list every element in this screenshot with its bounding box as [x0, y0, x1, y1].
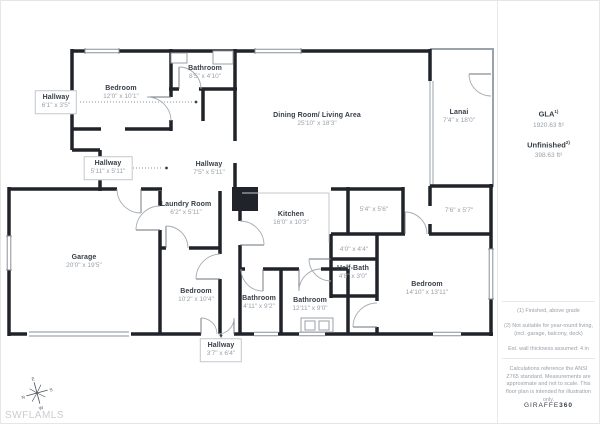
- room-label-bathroom-main: Bathroom 12'11" x 9'0": [292, 296, 327, 314]
- sidebar-divider: [502, 301, 595, 302]
- room-dims: 4'11" x 9'2": [242, 303, 276, 311]
- room-label-kitchen: Kitchen 16'0" x 10'3": [273, 210, 309, 228]
- room-name: Hallway: [42, 93, 70, 102]
- room-label-laundry: Laundry Room 6'2" x 5'11": [161, 200, 212, 218]
- room-label-bathroom-mid: Bathroom 4'11" x 9'2": [242, 294, 276, 312]
- room-name: Hallway: [91, 159, 126, 168]
- footnote-1: (1) Finished, above grade: [503, 308, 594, 316]
- room-name: Bedroom: [103, 84, 139, 93]
- unfinished-value: 398.63 ft²: [498, 152, 599, 159]
- room-label-bathroom-top: Bathroom 8'5" x 4'10": [188, 64, 222, 82]
- room-name: Hallway: [207, 341, 235, 350]
- room-dims: 3'7" x 6'4": [207, 350, 235, 358]
- room-dims: 4'0" x 4'4": [340, 246, 368, 254]
- room-label-lanai: Lanai 7'4" x 18'0": [443, 108, 475, 126]
- room-dims: 8'5" x 4'10": [188, 73, 222, 81]
- room-label-hallway-2: Hallway 5'11" x 5'11": [84, 156, 133, 180]
- room-name: Kitchen: [273, 210, 309, 219]
- room-dims: 25'10" x 18'3": [273, 120, 361, 128]
- disclaimer-text: Calculations reference the ANSI Z765 sta…: [505, 366, 592, 404]
- room-dims: 10'2" x 10'4": [178, 296, 214, 304]
- footnote-3: (incl. garage, balcony, deck): [503, 331, 594, 339]
- room-name: Bathroom: [242, 294, 276, 303]
- room-dims: 7'6" x 5'7": [445, 207, 473, 215]
- room-dims: 14'10" x 13'11": [406, 289, 448, 297]
- info-sidebar: GLA1) 1920.63 ft² Unfinished2) 398.63 ft…: [497, 1, 599, 424]
- compass-e: E: [31, 376, 35, 382]
- room-label-bedroom-right: Bedroom 14'10" x 13'11": [406, 280, 448, 298]
- room-name: Bathroom: [188, 64, 222, 73]
- gla-footnote-mark: 1): [554, 109, 558, 114]
- room-label-garage: Garage 20'0" x 19'5": [66, 253, 102, 271]
- brand-suffix: 360: [559, 402, 573, 409]
- compass-icon: E S W N: [17, 373, 57, 413]
- room-name: Bedroom: [406, 280, 448, 289]
- room-label-dining-living: Dining Room/ Living Area 25'10" x 18'3": [273, 111, 361, 129]
- room-name: Lanai: [443, 108, 475, 117]
- leader-lines: [80, 102, 221, 341]
- room-dims: 5'11" x 5'11": [91, 168, 126, 176]
- room-dims: 12'0" x 10'1": [103, 93, 139, 101]
- room-dims: 12'11" x 9'0": [292, 305, 327, 313]
- room-label-hallway-3: Hallway 7'5" x 5'11": [193, 160, 225, 178]
- room-label-bedroom-mid: Bedroom 10'2" x 10'4": [178, 287, 214, 305]
- room-label-closet-b: 7'6" x 5'7": [445, 207, 473, 215]
- unfinished-label: Unfinished2): [498, 140, 599, 150]
- room-name: Dining Room/ Living Area: [273, 111, 361, 120]
- compass-s: S: [49, 387, 53, 393]
- room-name: Garage: [66, 253, 102, 262]
- room-dims: 7'5" x 5'11": [193, 169, 225, 177]
- room-name: Laundry Room: [161, 200, 212, 209]
- room-label-closet-a: 5'4" x 5'6": [360, 206, 388, 214]
- room-label-hallway-4: Hallway 3'7" x 6'4": [200, 338, 242, 362]
- room-label-closet-c: 4'0" x 4'4": [340, 246, 368, 254]
- footnotes: (1) Finished, above grade (2) Not suitab…: [503, 308, 594, 354]
- brand-name: GIRAFFE: [524, 402, 559, 409]
- room-dims: 16'0" x 10'3": [273, 219, 309, 227]
- room-dims: 6'2" x 5'11": [161, 209, 212, 217]
- room-name: Bathroom: [292, 296, 327, 305]
- footnote-2: (2) Not suitable for year-round living,: [503, 323, 594, 331]
- room-name: Half-Bath: [337, 264, 369, 273]
- room-dims: 7'4" x 18'0": [443, 117, 475, 125]
- room-name: Hallway: [193, 160, 225, 169]
- sidebar-divider: [502, 358, 595, 359]
- floorplan-page: Bedroom 12'0" x 10'1" Bathroom 8'5" x 4'…: [0, 0, 600, 424]
- footnote-4: Est. wall thickness assumed: 4 in: [503, 346, 594, 354]
- room-label-bedroom-top: Bedroom 12'0" x 10'1": [103, 84, 139, 102]
- compass-n: N: [21, 394, 25, 400]
- room-label-hallway-1: Hallway 6'1" x 3'5": [35, 90, 77, 114]
- room-name: Bedroom: [178, 287, 214, 296]
- room-label-half-bath: Half-Bath 4'8" x 3'0": [337, 264, 369, 282]
- room-dims: 4'8" x 3'0": [337, 273, 369, 281]
- room-dims: 5'4" x 5'6": [360, 206, 388, 214]
- room-dims: 20'0" x 19'5": [66, 262, 102, 270]
- gla-label: GLA1): [498, 109, 599, 119]
- unfinished-footnote-mark: 2): [566, 140, 570, 145]
- giraffe360-logo: GIRAFFE360: [498, 402, 599, 409]
- area-summary: GLA1) 1920.63 ft² Unfinished2) 398.63 ft…: [498, 109, 599, 159]
- room-dims: 6'1" x 3'5": [42, 102, 70, 110]
- gla-value: 1920.63 ft²: [498, 122, 599, 129]
- mls-watermark: SWFLAMLS: [5, 410, 64, 421]
